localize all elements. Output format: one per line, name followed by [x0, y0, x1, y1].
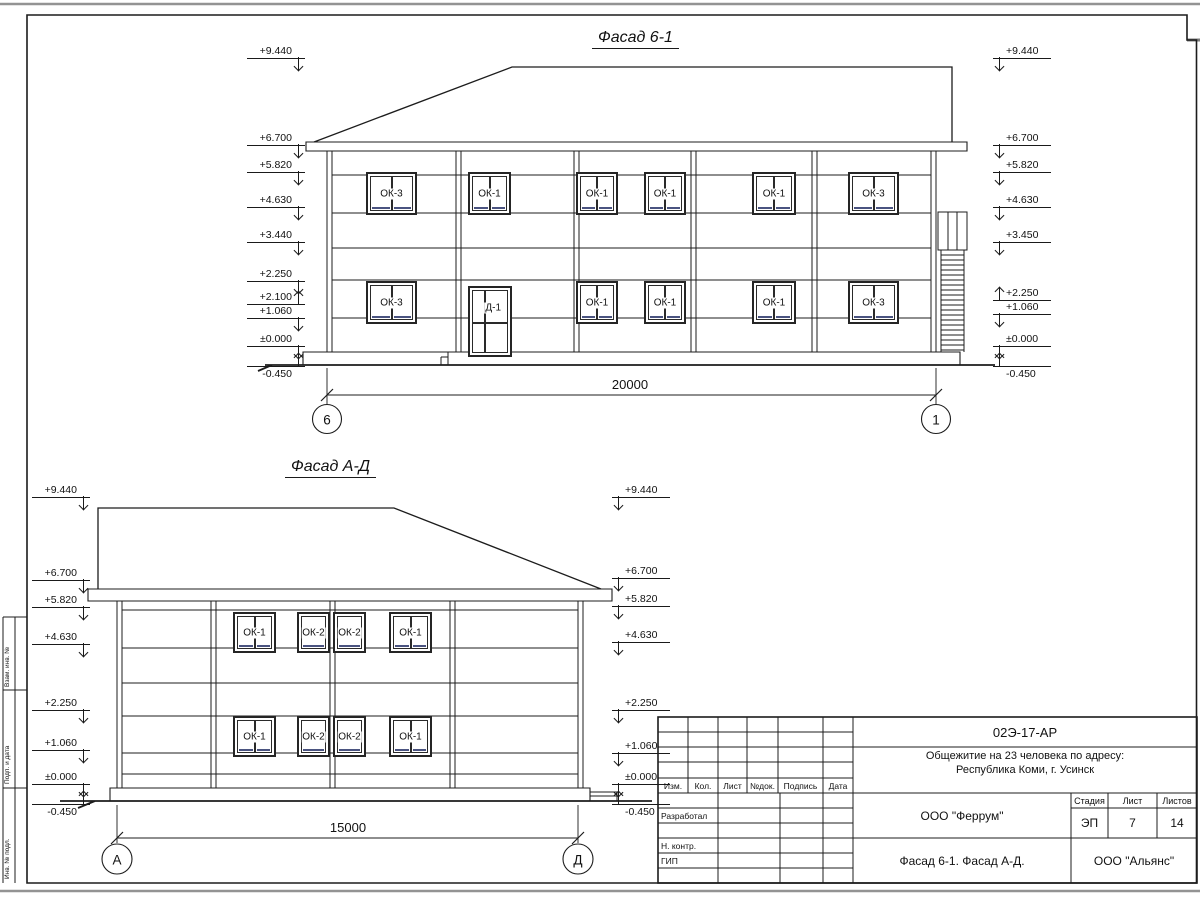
window: ОК-1 [576, 172, 618, 215]
elevation-mark: +2.250 [993, 286, 1051, 301]
elevation-arrow-icon [612, 605, 625, 618]
drawing-caption: Фасад 6-1. Фасад А-Д. [853, 838, 1071, 883]
facade-a-d-title: Фасад А-Д [285, 458, 376, 478]
window: ОК-3 [848, 281, 899, 324]
window: ОК-2 [297, 716, 330, 757]
elevation-value: +1.060 [993, 301, 1038, 313]
elevation-mark: +6.700 [612, 564, 670, 579]
elevation-mark: -0.450 [247, 366, 305, 381]
elevation-arrow-icon [993, 313, 1006, 326]
elevation-value: +1.060 [260, 305, 305, 317]
elevation-mark: +5.820 [247, 158, 305, 173]
opening-label: ОК-2 [301, 731, 326, 742]
elevation-value: +2.250 [612, 697, 657, 709]
elevation-mark: +4.630 [612, 628, 670, 643]
elevation-value: -0.450 [262, 368, 305, 380]
opening-label: ОК-1 [242, 731, 267, 742]
window: ОК-1 [233, 612, 276, 653]
elevation-value: +3.440 [260, 229, 305, 241]
axis-label-1: 1 [932, 413, 940, 428]
elevation-value: ±0.000 [45, 771, 90, 783]
elevation-arrow-icon [612, 709, 625, 722]
plinth [303, 352, 960, 365]
stamp-inv-podl: Инв. № подл. [4, 839, 11, 880]
elevation-arrow-icon [77, 643, 90, 656]
opening-label: ОК-2 [337, 627, 362, 638]
stamp-vzam-inv: Взам. инв. № [4, 647, 11, 687]
window: ОК-3 [366, 172, 417, 215]
elevation-mark: +3.440 [247, 228, 305, 243]
opening-label: ОК-2 [337, 731, 362, 742]
elevation-mark: +9.440 [247, 44, 305, 59]
elevation-arrow-icon [77, 709, 90, 722]
opening-label: ОК-1 [477, 188, 502, 199]
sheet-header: Лист [1108, 793, 1157, 808]
opening-label: ОК-3 [861, 297, 886, 308]
elevation-mark: +3.450 [993, 228, 1051, 243]
frame [472, 290, 508, 353]
elevation-value: +5.820 [45, 594, 90, 606]
elevation-mark: +6.700 [993, 131, 1051, 146]
col-header-list: Лист [718, 778, 747, 793]
dimension-20000: 20000 [580, 377, 680, 392]
window: ОК-1 [576, 281, 618, 324]
elevation-mark: +1.060 [993, 300, 1051, 315]
elevation-arrow-icon [612, 577, 625, 590]
org-name: ООО "Феррум" [853, 793, 1071, 838]
facade-6-1-title: Фасад 6-1 [592, 29, 679, 49]
elevation-arrow-icon [77, 749, 90, 762]
elevation-mark: +9.440 [32, 483, 90, 498]
elevation-mark: +2.100 [247, 290, 305, 305]
elevation-mark: +1.060 [247, 304, 305, 319]
door: Д-1 [468, 286, 512, 357]
elevation-value: ±0.000 [993, 333, 1038, 345]
elevation-arrow-icon [292, 317, 305, 330]
opening-label: ОК-1 [653, 188, 678, 199]
elevation-arrow-icon [612, 641, 625, 654]
elevation-arrow-icon [77, 606, 90, 619]
ladder-cage [938, 212, 967, 250]
opening-label: ОК-2 [301, 627, 326, 638]
elevation-value: +3.450 [993, 229, 1038, 241]
sheets-header: Листов [1157, 793, 1197, 808]
door-divider [473, 322, 507, 324]
elevation-value: +1.060 [612, 740, 657, 752]
elevation-mark: +4.630 [32, 630, 90, 645]
axis-label-a: А [112, 853, 121, 868]
window: ОК-1 [644, 172, 686, 215]
elevation-arrow-icon [993, 171, 1006, 184]
opening-label: ОК-1 [398, 627, 423, 638]
window: ОК-1 [389, 612, 432, 653]
elevation-mark: +4.630 [993, 193, 1051, 208]
elevation-value: +2.250 [260, 268, 305, 280]
elevation-mark: +1.060 [612, 739, 670, 754]
opening-label: ОК-1 [762, 297, 787, 308]
col-header-ndok: №док. [747, 778, 778, 793]
window: ОК-1 [752, 172, 796, 215]
wall-pilasters [327, 151, 936, 352]
elevation-mark: +5.820 [993, 158, 1051, 173]
elevation-value: +5.820 [612, 593, 657, 605]
elevation-mark: +5.820 [612, 592, 670, 607]
elevation-mark: +9.440 [612, 483, 670, 498]
window: ОК-2 [297, 612, 330, 653]
elevation-value: ±0.000 [612, 771, 657, 783]
elevation-arrow-icon [77, 579, 90, 592]
elevation-mark: +2.250 [247, 267, 305, 282]
elevation-mark: +6.700 [247, 131, 305, 146]
ladder-rungs [941, 255, 964, 350]
elevation-value: +6.700 [612, 565, 657, 577]
elevation-value: ±0.000 [260, 333, 305, 345]
roof-outline [98, 508, 601, 589]
elevation-arrow-icon [612, 792, 625, 805]
elevation-arrow-icon [993, 354, 1006, 367]
elevation-value: +1.060 [45, 737, 90, 749]
siding-lines [332, 175, 931, 318]
window: ОК-3 [848, 172, 899, 215]
elevation-value: -0.450 [47, 806, 90, 818]
elevation-value: +4.630 [260, 194, 305, 206]
elevation-mark: +2.250 [32, 696, 90, 711]
eave-band [306, 142, 967, 151]
plinth [110, 788, 590, 801]
opening-label: ОК-1 [585, 297, 610, 308]
sheets-value: 14 [1157, 808, 1197, 838]
ground-line [60, 801, 652, 808]
role-n-kontr: Н. контр. [658, 838, 718, 853]
elevation-arrow-icon [292, 57, 305, 70]
elevation-mark: +1.060 [32, 736, 90, 751]
elevation-arrow-icon [993, 144, 1006, 157]
col-header-data: Дата [823, 778, 853, 793]
elevation-mark: -0.450 [32, 804, 90, 819]
elevation-arrow-icon [292, 144, 305, 157]
elevation-mark: +9.440 [993, 44, 1051, 59]
col-header-kol: Кол. [688, 778, 718, 793]
elevation-value: +9.440 [45, 484, 90, 496]
role-razrabotal: Разработал [658, 808, 718, 823]
opening-label: ОК-1 [398, 731, 423, 742]
window: ОК-2 [333, 612, 366, 653]
elevation-mark: +2.250 [612, 696, 670, 711]
elevation-arrow-icon [993, 241, 1006, 254]
elevation-value: +4.630 [993, 194, 1038, 206]
ground-line [258, 365, 995, 371]
elevation-value: +6.700 [45, 567, 90, 579]
elevation-mark: ±0.000 [32, 770, 90, 785]
elevation-mark: -0.450 [993, 366, 1051, 381]
elevation-value: +9.440 [260, 45, 305, 57]
eave-band [88, 589, 612, 601]
axis-label-d: Д [573, 853, 582, 868]
project-name-line2: Республика Коми, г. Усинск [853, 762, 1197, 777]
elevation-arrow-icon [993, 206, 1006, 219]
elevation-mark: ±0.000 [993, 332, 1051, 347]
elevation-value: -0.450 [612, 806, 655, 818]
window: ОК-3 [366, 281, 417, 324]
elevation-mark: +4.630 [247, 193, 305, 208]
stage-header: Стадия [1071, 793, 1108, 808]
col-header-podpis: Подпись [778, 778, 823, 793]
opening-label: ОК-3 [379, 188, 404, 199]
window: ОК-1 [389, 716, 432, 757]
elevation-mark: +5.820 [32, 593, 90, 608]
window: ОК-1 [752, 281, 796, 324]
elevation-value: -0.450 [993, 368, 1036, 380]
opening-label: ОК-1 [653, 297, 678, 308]
elevation-value: +9.440 [993, 45, 1038, 57]
role-gip: ГИП [658, 853, 718, 868]
stamp-podp-data: Подп. и дата [4, 746, 11, 784]
opening-label: Д-1 [484, 303, 502, 314]
elevation-arrow-icon [292, 241, 305, 254]
doc-code: 02Э-17-АР [853, 717, 1197, 747]
opening-label: ОК-1 [242, 627, 267, 638]
stage-value: ЭП [1071, 808, 1108, 838]
drawing-sheet: Фасад 6-1 Фасад А-Д +9.440+6.700+5.820+4… [0, 0, 1200, 900]
elevation-arrow-icon [292, 354, 305, 367]
project-name-line1: Общежитие на 23 человека по адресу: [853, 748, 1197, 763]
sheet-value: 7 [1108, 808, 1157, 838]
opening-label: ОК-3 [861, 188, 886, 199]
elevation-value: +5.820 [993, 159, 1038, 171]
elevation-value: +5.820 [260, 159, 305, 171]
roof-outline [314, 67, 952, 142]
window: ОК-1 [468, 172, 511, 215]
elevation-arrow-icon [77, 792, 90, 805]
elevation-arrow-icon [77, 496, 90, 509]
opening-label: ОК-1 [585, 188, 610, 199]
axis-label-6: 6 [323, 413, 331, 428]
elevation-value: +4.630 [45, 631, 90, 643]
elevation-mark: ±0.000 [247, 332, 305, 347]
elevation-arrow-icon [292, 171, 305, 184]
window: ОК-1 [233, 716, 276, 757]
elevation-arrow-icon [612, 496, 625, 509]
col-header-izm: Изм. [658, 778, 688, 793]
window: ОК-1 [644, 281, 686, 324]
elevation-value: +6.700 [260, 132, 305, 144]
opening-label: ОК-3 [379, 297, 404, 308]
window: ОК-2 [333, 716, 366, 757]
dimension-15000: 15000 [298, 820, 398, 835]
elevation-arrow-icon [612, 752, 625, 765]
org2-name: ООО "Альянс" [1071, 838, 1197, 883]
elevation-arrow-icon [993, 57, 1006, 70]
elevation-value: +2.250 [45, 697, 90, 709]
elevation-value: +6.700 [993, 132, 1038, 144]
elevation-value: +9.440 [612, 484, 657, 496]
elevation-mark: +6.700 [32, 566, 90, 581]
opening-label: ОК-1 [762, 188, 787, 199]
elevation-arrow-icon [292, 206, 305, 219]
elevation-value: +4.630 [612, 629, 657, 641]
